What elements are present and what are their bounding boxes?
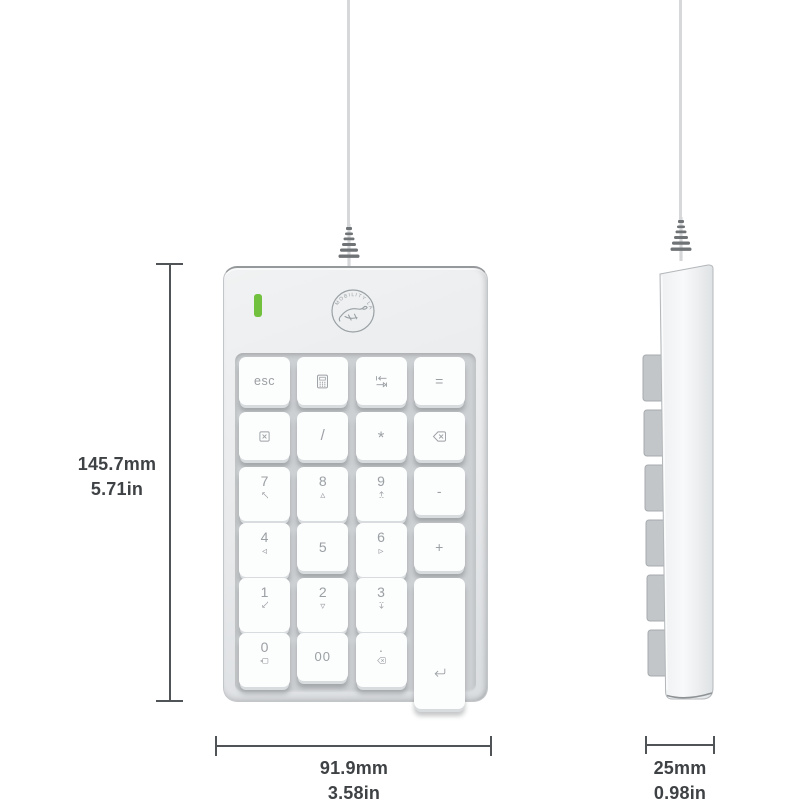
key-7: 7 <box>239 467 290 521</box>
key-equals: = <box>414 357 465 405</box>
key-6-label: 6 <box>377 529 385 545</box>
depth-dimension-cap-right <box>713 736 715 754</box>
keypad-front-view: MOBILITY LAB esc=/*78▵9-4◃56▹+12▿3000. <box>223 266 488 702</box>
depth-dimension-line <box>645 744 715 746</box>
keypad-side-view <box>630 260 730 708</box>
depth-dimension-cap-left <box>645 736 647 754</box>
front-cable <box>347 0 350 230</box>
key-2-label: 2 <box>319 584 327 600</box>
key-plate: esc=/*78▵9-4◃56▹+12▿3000. <box>235 353 476 692</box>
calculator-icon <box>314 373 331 390</box>
key-enter <box>414 578 465 709</box>
height-mm: 145.7mm <box>47 452 187 477</box>
key-1: 1 <box>239 578 290 632</box>
key-5: 5 <box>297 523 348 571</box>
key-00: 00 <box>297 633 348 681</box>
key-multiply-label: * <box>378 430 385 446</box>
key-numlock <box>239 412 290 460</box>
key-4: 4◃ <box>239 523 290 577</box>
side-cable-strain-relief <box>666 214 696 264</box>
home-icon <box>259 489 270 500</box>
height-dimension-cap-bottom <box>156 700 183 702</box>
key-minus-label: - <box>437 483 442 499</box>
key-2-secondary: ▿ <box>320 601 325 612</box>
key-multiply: * <box>356 412 407 460</box>
key-9: 9 <box>356 467 407 521</box>
key-3-label: 3 <box>377 584 385 600</box>
key-2: 2▿ <box>297 578 348 632</box>
key-5-label: 5 <box>319 539 327 555</box>
front-cable-strain-relief <box>334 224 364 268</box>
key-8-label: 8 <box>319 473 327 489</box>
key-plus-label: + <box>435 539 443 555</box>
key-1-label: 1 <box>261 584 269 600</box>
power-led <box>254 294 262 317</box>
key-backspace <box>414 412 465 460</box>
key-tab <box>356 357 407 405</box>
width-dimension-label: 91.9mm 3.58in <box>254 756 454 800</box>
key-00-label: 00 <box>315 649 331 665</box>
key-decimal-label: . <box>379 639 383 655</box>
key-3: 3 <box>356 578 407 632</box>
numlock-icon <box>256 428 273 445</box>
delete-icon <box>376 655 387 666</box>
width-mm: 91.9mm <box>254 756 454 781</box>
side-cable <box>679 0 682 220</box>
key-plus: + <box>414 523 465 571</box>
product-dimension-diagram: MOBILITY LAB esc=/*78▵9-4◃56▹+12▿3000. <box>0 0 800 800</box>
kangaroo-icon <box>339 306 367 321</box>
end-icon <box>259 600 270 611</box>
key-equals-label: = <box>435 373 443 389</box>
key-esc-label: esc <box>254 373 275 389</box>
key-minus: - <box>414 467 465 515</box>
brand-logo: MOBILITY LAB <box>321 278 385 342</box>
key-4-label: 4 <box>261 529 269 545</box>
width-dimension-cap-left <box>215 736 217 756</box>
side-body <box>660 265 713 699</box>
key-divide-label: / <box>321 428 325 444</box>
key-6: 6▹ <box>356 523 407 577</box>
key-decimal: . <box>356 633 407 687</box>
key-esc: esc <box>239 357 290 405</box>
height-dimension-label: 145.7mm 5.71in <box>47 452 187 502</box>
key-4-secondary: ◃ <box>262 546 267 557</box>
key-8-secondary: ▵ <box>320 490 325 501</box>
key-calculator <box>297 357 348 405</box>
width-inch: 3.58in <box>254 781 454 800</box>
enter-icon <box>431 664 448 681</box>
insert-icon <box>259 655 270 666</box>
backspace-icon <box>431 428 448 445</box>
key-8: 8▵ <box>297 467 348 521</box>
key-6-secondary: ▹ <box>378 546 383 557</box>
key-9-label: 9 <box>377 473 385 489</box>
key-0-label: 0 <box>261 639 269 655</box>
depth-inch: 0.98in <box>610 781 750 800</box>
depth-dimension-label: 25mm 0.98in <box>610 756 750 800</box>
width-dimension-line <box>215 745 492 747</box>
width-dimension-cap-right <box>490 736 492 756</box>
key-0: 0 <box>239 633 290 687</box>
key-7-label: 7 <box>261 473 269 489</box>
depth-mm: 25mm <box>610 756 750 781</box>
page-down-icon <box>376 600 387 611</box>
tab-icon <box>373 373 390 390</box>
height-dimension-cap-top <box>156 263 183 265</box>
key-divide: / <box>297 412 348 460</box>
height-inch: 5.71in <box>47 477 187 502</box>
page-up-icon <box>376 489 387 500</box>
